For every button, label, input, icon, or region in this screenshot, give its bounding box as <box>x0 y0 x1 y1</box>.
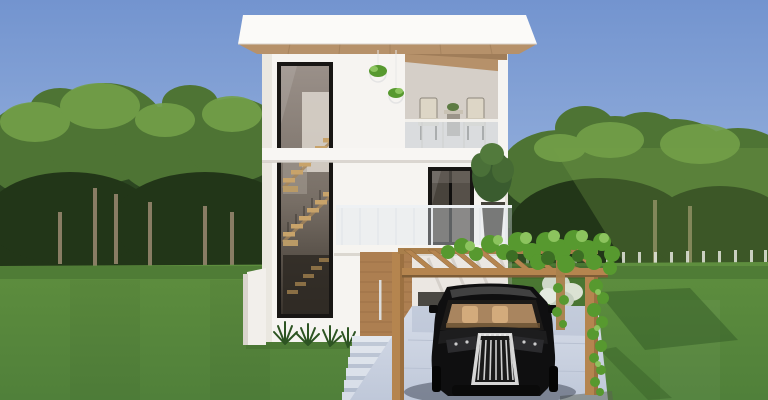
car-wheel-left <box>432 366 441 392</box>
car-grille <box>471 333 519 385</box>
scene-canvas: blue sky pine forest backdrop <box>0 0 768 400</box>
car-mirror-left <box>429 305 438 313</box>
rendered-scene: 3D exterior rendering of a modern white … <box>0 0 768 400</box>
car-wheel-right <box>549 366 558 392</box>
wing-wall <box>243 268 266 345</box>
car-windshield <box>440 300 544 330</box>
floor-slab-band <box>262 148 508 162</box>
staircase-window: tall glazed staircase window interior wo… <box>277 62 337 318</box>
roof-terrace: recessed roof terrace with outdoor chair… <box>405 48 508 150</box>
roof-slab: flat roof slab with wooden soffit <box>238 15 537 54</box>
door-handle <box>379 280 382 320</box>
